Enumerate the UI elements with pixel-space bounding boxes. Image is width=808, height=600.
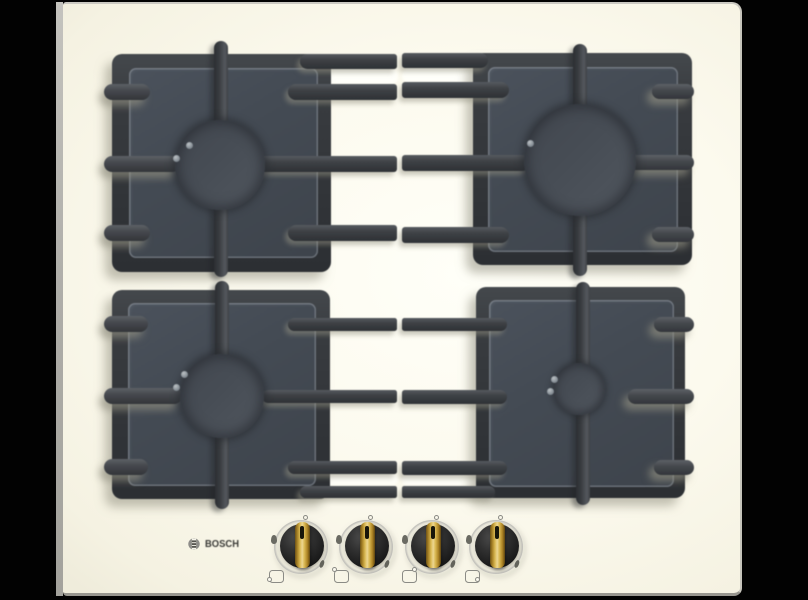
svg-text:BOSCH: BOSCH	[205, 539, 239, 550]
